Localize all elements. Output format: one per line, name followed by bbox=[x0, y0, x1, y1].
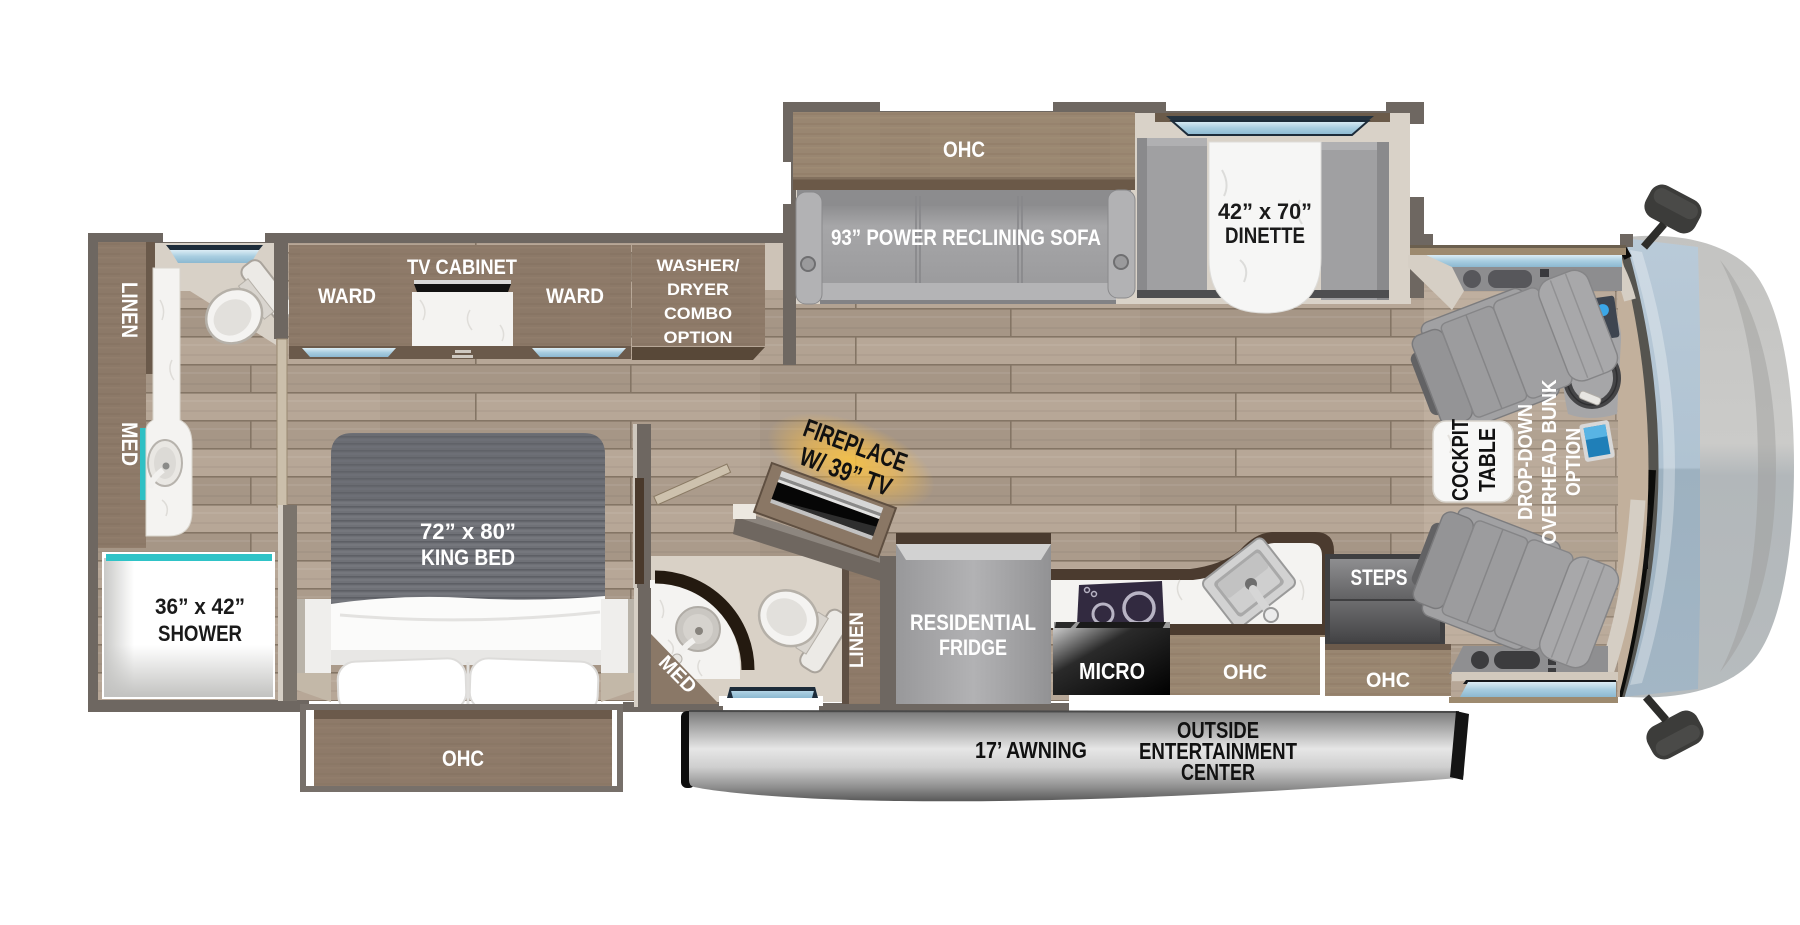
svg-text:17’ AWNING: 17’ AWNING bbox=[975, 737, 1087, 763]
svg-text:RESIDENTIAL: RESIDENTIAL bbox=[910, 610, 1036, 635]
svg-text:DRYER: DRYER bbox=[667, 280, 729, 299]
svg-text:MICRO: MICRO bbox=[1079, 658, 1145, 684]
svg-text:DINETTE: DINETTE bbox=[1225, 223, 1305, 248]
svg-text:OPTION: OPTION bbox=[1563, 428, 1585, 496]
svg-text:DROP-DOWN: DROP-DOWN bbox=[1515, 404, 1537, 520]
svg-text:OHC: OHC bbox=[442, 746, 484, 771]
svg-text:LINEN: LINEN bbox=[117, 282, 142, 338]
svg-text:OHC: OHC bbox=[943, 137, 985, 162]
svg-text:STEPS: STEPS bbox=[1351, 565, 1408, 590]
svg-text:SHOWER: SHOWER bbox=[158, 621, 242, 646]
svg-text:36” x 42”: 36” x 42” bbox=[155, 594, 245, 619]
svg-text:COMBO: COMBO bbox=[664, 304, 732, 323]
svg-text:42” x 70”: 42” x 70” bbox=[1218, 199, 1312, 224]
svg-text:KING BED: KING BED bbox=[421, 545, 515, 570]
svg-text:OHC: OHC bbox=[1366, 669, 1410, 692]
svg-text:OVERHEAD BUNK: OVERHEAD BUNK bbox=[1539, 379, 1561, 545]
svg-text:72” x 80”: 72” x 80” bbox=[420, 519, 516, 544]
svg-text:WARD: WARD bbox=[318, 285, 376, 308]
svg-text:OHC: OHC bbox=[1223, 661, 1267, 684]
svg-text:TABLE: TABLE bbox=[1474, 428, 1500, 492]
svg-text:CENTER: CENTER bbox=[1181, 759, 1255, 785]
svg-text:TV CABINET: TV CABINET bbox=[407, 256, 517, 279]
svg-text:93” POWER RECLINING SOFA: 93” POWER RECLINING SOFA bbox=[831, 225, 1101, 250]
svg-text:WARD: WARD bbox=[546, 285, 604, 308]
svg-text:OPTION: OPTION bbox=[664, 328, 733, 347]
svg-text:FRIDGE: FRIDGE bbox=[939, 635, 1007, 660]
svg-text:LINEN: LINEN bbox=[847, 612, 868, 668]
svg-text:MED: MED bbox=[117, 422, 142, 466]
svg-text:COCKPIT: COCKPIT bbox=[1447, 419, 1473, 501]
svg-text:WASHER/: WASHER/ bbox=[657, 256, 740, 275]
